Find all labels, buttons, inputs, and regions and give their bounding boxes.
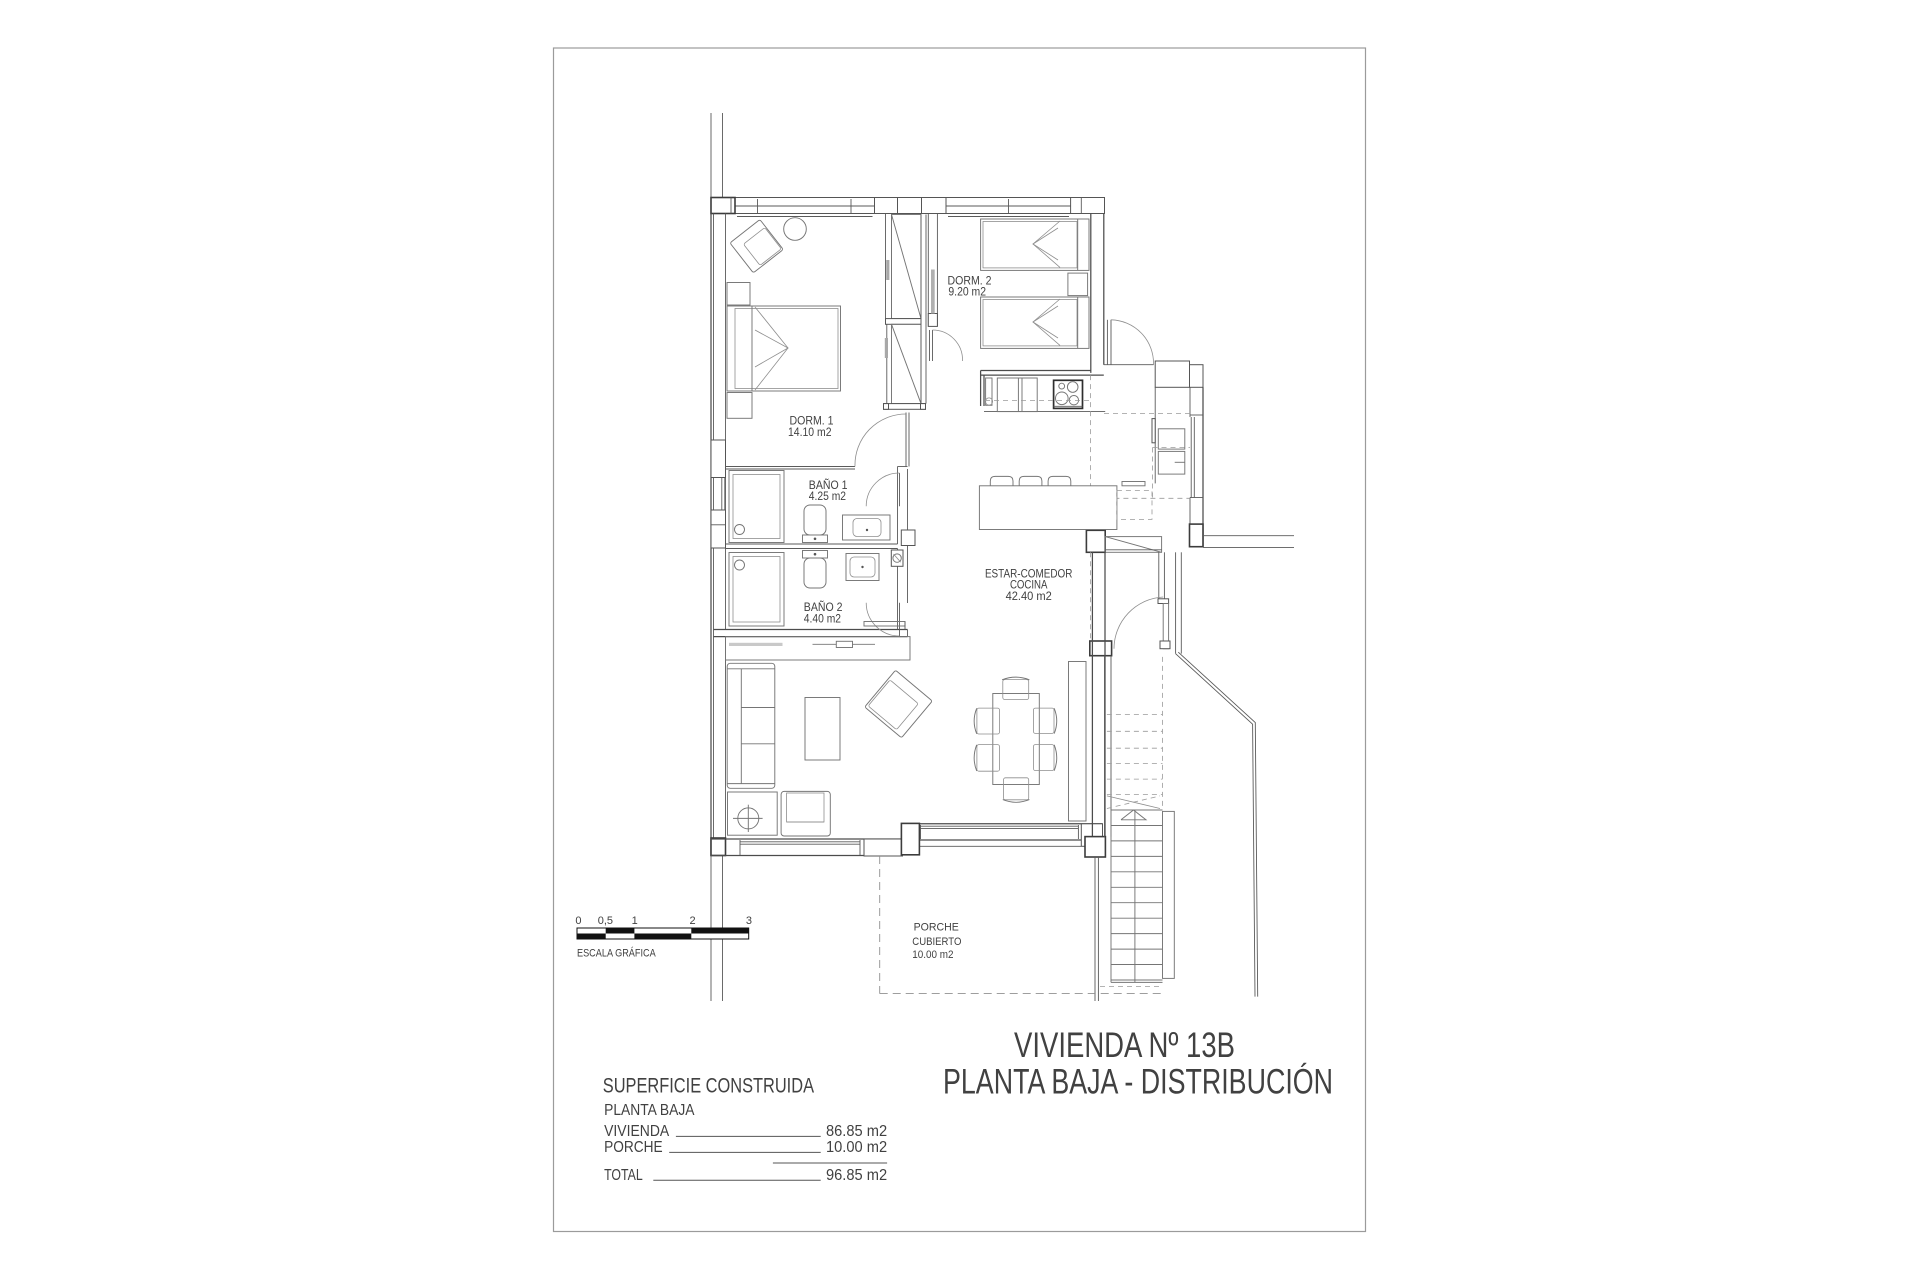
svg-text:PLANTA BAJA - DISTRIBUCIÓN: PLANTA BAJA - DISTRIBUCIÓN bbox=[943, 1062, 1333, 1102]
svg-text:10.00 m2: 10.00 m2 bbox=[912, 949, 953, 961]
svg-text:CUBIERTO: CUBIERTO bbox=[912, 936, 961, 948]
svg-text:10.00 m2: 10.00 m2 bbox=[826, 1139, 887, 1156]
svg-text:PORCHE: PORCHE bbox=[604, 1139, 663, 1156]
svg-text:4.25 m2: 4.25 m2 bbox=[809, 489, 846, 503]
svg-text:86.85 m2: 86.85 m2 bbox=[826, 1123, 887, 1140]
svg-text:TOTAL: TOTAL bbox=[604, 1167, 643, 1184]
svg-text:9.20 m2: 9.20 m2 bbox=[948, 284, 986, 298]
svg-text:ESCALA GRÁFICA: ESCALA GRÁFICA bbox=[577, 946, 656, 959]
svg-text:VIVIENDA: VIVIENDA bbox=[604, 1123, 669, 1140]
svg-text:1: 1 bbox=[632, 915, 638, 927]
svg-text:42.40 m2: 42.40 m2 bbox=[1006, 589, 1052, 603]
svg-text:SUPERFICIE CONSTRUIDA: SUPERFICIE CONSTRUIDA bbox=[603, 1074, 815, 1098]
svg-text:4.40 m2: 4.40 m2 bbox=[804, 611, 841, 625]
svg-text:3: 3 bbox=[746, 915, 752, 927]
svg-text:14.10 m2: 14.10 m2 bbox=[788, 425, 832, 439]
svg-text:PORCHE: PORCHE bbox=[914, 922, 959, 934]
svg-text:96.85 m2: 96.85 m2 bbox=[826, 1167, 887, 1184]
svg-text:0: 0 bbox=[575, 915, 581, 927]
svg-text:0,5: 0,5 bbox=[598, 915, 613, 927]
svg-text:VIVIENDA Nº 13B: VIVIENDA Nº 13B bbox=[1014, 1025, 1235, 1065]
svg-text:2: 2 bbox=[690, 915, 696, 927]
svg-text:PLANTA BAJA: PLANTA BAJA bbox=[604, 1102, 695, 1119]
